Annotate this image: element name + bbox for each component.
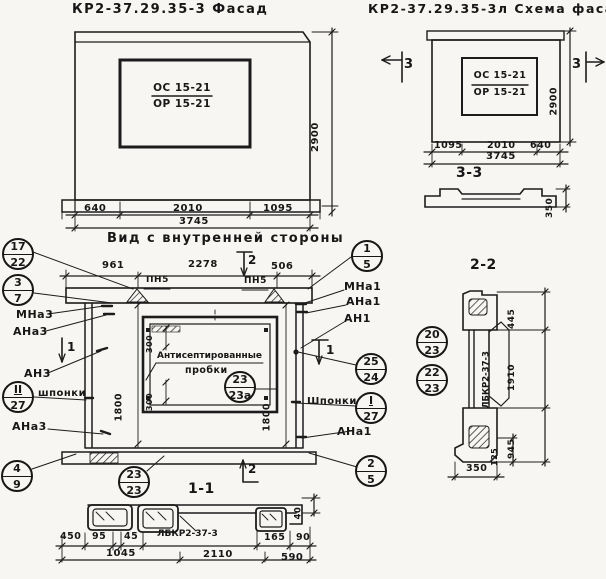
dim-40: 40 xyxy=(295,507,304,520)
callout-top: 1 xyxy=(353,242,381,257)
dim-1045: 1045 xyxy=(106,549,136,559)
callout-bottom: 23 xyxy=(424,381,439,395)
callout-bottom: 27 xyxy=(10,398,25,412)
inner-dim-300-top: 300 xyxy=(146,335,154,353)
facade-window-mark-top: ОС 15-21 xyxy=(150,83,214,94)
callout-2-5: 2 5 xyxy=(355,455,387,487)
facade-dim-640: 640 xyxy=(84,204,106,214)
dim-125: 125 xyxy=(491,448,499,466)
ana1-label: АНа1 xyxy=(346,296,381,307)
dim-45: 45 xyxy=(124,532,138,542)
inner-dim-1800-left: 1800 xyxy=(115,393,125,421)
callout-II-27: II 27 xyxy=(2,381,34,413)
callout-top: 23 xyxy=(226,373,254,388)
schema-window-mark-bottom: ОР 15-21 xyxy=(470,88,530,98)
ana3-label: АНа3 xyxy=(13,326,48,337)
cut1-left-label: 1 xyxy=(67,341,76,353)
dim-1910: 1910 xyxy=(508,364,517,391)
schema-dim-3745: 3745 xyxy=(486,152,516,162)
facade-dim-1095: 1095 xyxy=(263,204,293,214)
callout-top: 17 xyxy=(4,240,32,255)
dim-945: 945 xyxy=(508,439,517,459)
beam-mark-2-2: ЛБКР2-37-3 xyxy=(483,351,492,408)
callout-top: I xyxy=(357,394,385,409)
dim-95: 95 xyxy=(92,532,106,542)
section-3-3-label: 3-3 xyxy=(456,166,483,180)
inner-dim-506: 506 xyxy=(271,262,293,272)
inner-dim-961: 961 xyxy=(102,261,124,271)
callout-top: 2 xyxy=(357,457,385,472)
callout-17-22: 17 22 xyxy=(2,238,34,270)
schema-title: КР2-37.29.35-3л Схема фасада xyxy=(368,3,606,16)
schema-dim-640: 640 xyxy=(530,141,551,151)
schema-dim-1095: 1095 xyxy=(434,141,462,151)
callout-4-9: 4 9 xyxy=(1,460,33,492)
facade-dim-3745: 3745 xyxy=(179,217,209,227)
callout-top: 23 xyxy=(120,468,148,483)
note-line1: Антисептированные xyxy=(157,352,262,361)
callout-20-23: 20 23 xyxy=(416,326,448,358)
blueprint-sheet: КР2-37.29.35-3 Фасад КР2-37.29.35-3л Схе… xyxy=(0,0,606,579)
dim-350-bottom: 350 xyxy=(466,464,487,474)
note-line2: пробки xyxy=(185,366,228,376)
facade-window-mark-bottom: ОР 15-21 xyxy=(150,99,214,110)
callout-bottom: 7 xyxy=(14,291,22,305)
shponki-left-label: шпонки xyxy=(38,389,86,399)
inner-dim-2278: 2278 xyxy=(188,260,218,270)
section-2-2-label: 2-2 xyxy=(470,258,497,272)
callout-3-7: 3 7 xyxy=(2,274,34,306)
ana1-label-2: АНа1 xyxy=(337,426,372,437)
dim-590: 590 xyxy=(281,553,303,563)
schema-dim-2900: 2900 xyxy=(550,87,560,115)
dim-450: 450 xyxy=(60,532,81,542)
schema-cut3-left-label: 3 xyxy=(404,58,414,71)
beam-mark-1-1: ЛБКР2-37-3 xyxy=(157,530,218,539)
callout-1-5: 1 5 xyxy=(351,240,383,272)
dim-165: 165 xyxy=(264,533,285,543)
an1-label: АН1 xyxy=(344,313,371,324)
callout-bottom: 23 xyxy=(424,343,439,357)
pn5-left-label: ПН5 xyxy=(146,276,169,285)
mna3-label: МНа3 xyxy=(16,309,53,320)
dim-2110: 2110 xyxy=(203,550,233,560)
dim-90: 90 xyxy=(296,533,310,543)
an3-label: АН3 xyxy=(24,368,51,379)
schema-cut3-right-label: 3 xyxy=(572,58,582,71)
cut2-top-label: 2 xyxy=(248,254,257,266)
mna1-label: МНа1 xyxy=(344,281,381,292)
callout-bottom: 23а xyxy=(229,388,252,402)
cut2-bottom-label: 2 xyxy=(248,463,257,475)
schema-window-mark-top: ОС 15-21 xyxy=(470,71,530,81)
facade-dim-2010: 2010 xyxy=(173,204,203,214)
callout-bottom: 5 xyxy=(363,257,371,271)
pn5-right-label: ПН5 xyxy=(244,277,267,286)
callout-top: 4 xyxy=(3,462,31,477)
inner-dim-1800-right: 1800 xyxy=(263,403,273,431)
cut1-right-label: 1 xyxy=(326,344,335,356)
dim-445: 445 xyxy=(508,309,517,329)
callout-bottom: 9 xyxy=(13,477,21,491)
facade-title: КР2-37.29.35-3 Фасад xyxy=(72,3,268,16)
callout-bottom: 22 xyxy=(10,255,25,269)
callout-bottom: 23 xyxy=(126,483,141,497)
section-1-1-label: 1-1 xyxy=(188,482,215,496)
facade-dim-2900: 2900 xyxy=(311,122,321,152)
callout-22-23: 22 23 xyxy=(416,364,448,396)
callout-bottom: 24 xyxy=(363,370,378,384)
inner-dim-300-bottom: 300 xyxy=(146,393,154,411)
callout-top: 20 xyxy=(418,328,446,343)
callout-bottom: 27 xyxy=(363,409,378,423)
callout-top: 25 xyxy=(357,355,385,370)
inner-view-title: Вид с внутренней стороны xyxy=(107,232,344,245)
callout-bottom: 5 xyxy=(367,472,375,486)
profile-dim-350: 350 xyxy=(546,198,555,218)
callout-23-23a: 23 23а xyxy=(224,371,256,403)
callout-top: 22 xyxy=(418,366,446,381)
callout-top: 3 xyxy=(4,276,32,291)
callout-23-23: 23 23 xyxy=(118,466,150,498)
ana3-label-2: АНа3 xyxy=(12,421,47,432)
callout-top: II xyxy=(4,383,32,398)
callout-25-24: 25 24 xyxy=(355,353,387,385)
shponki-right-label: Шпонки xyxy=(307,397,357,407)
schema-dim-2010: 2010 xyxy=(487,141,515,151)
callout-I-27: I 27 xyxy=(355,392,387,424)
